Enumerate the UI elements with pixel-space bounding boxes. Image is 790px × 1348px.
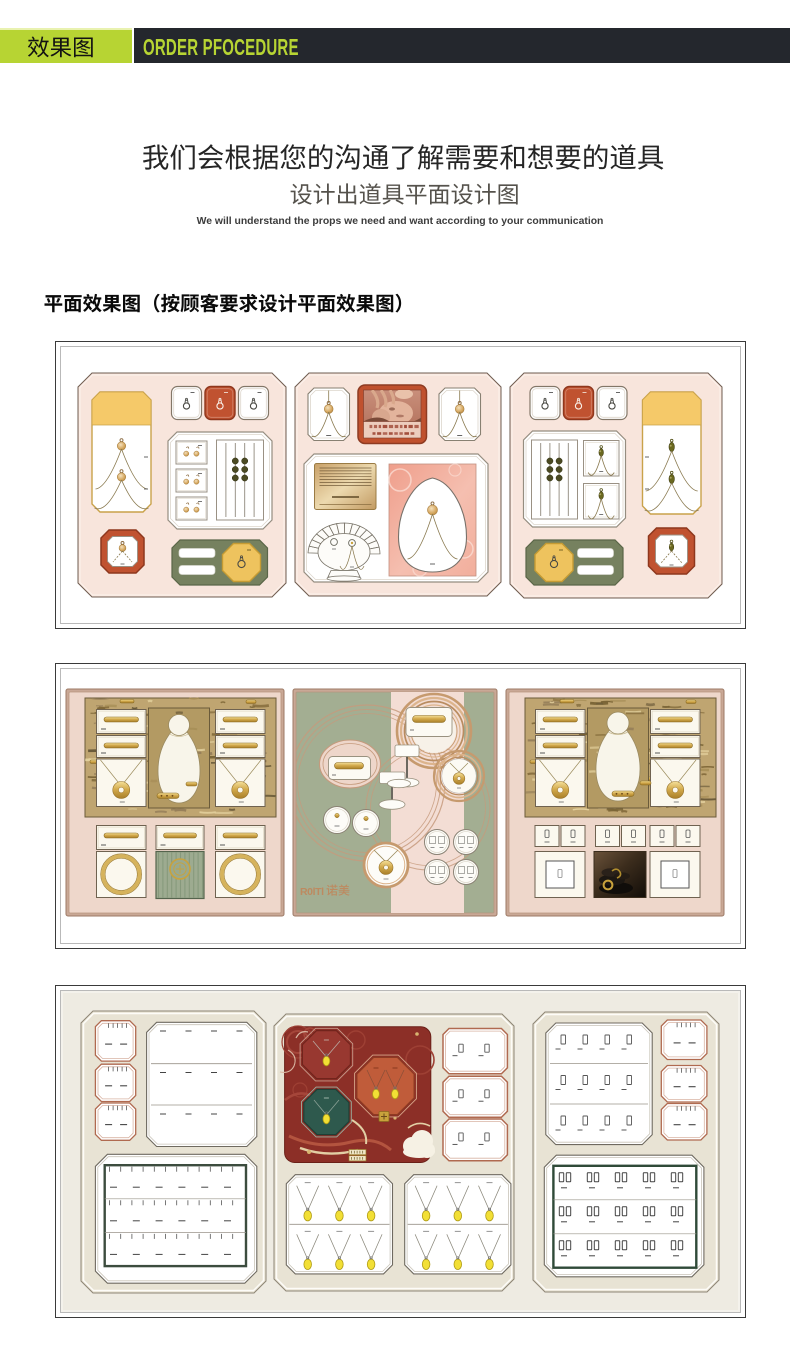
svg-text:R0lTl: R0lTl [300, 886, 324, 898]
